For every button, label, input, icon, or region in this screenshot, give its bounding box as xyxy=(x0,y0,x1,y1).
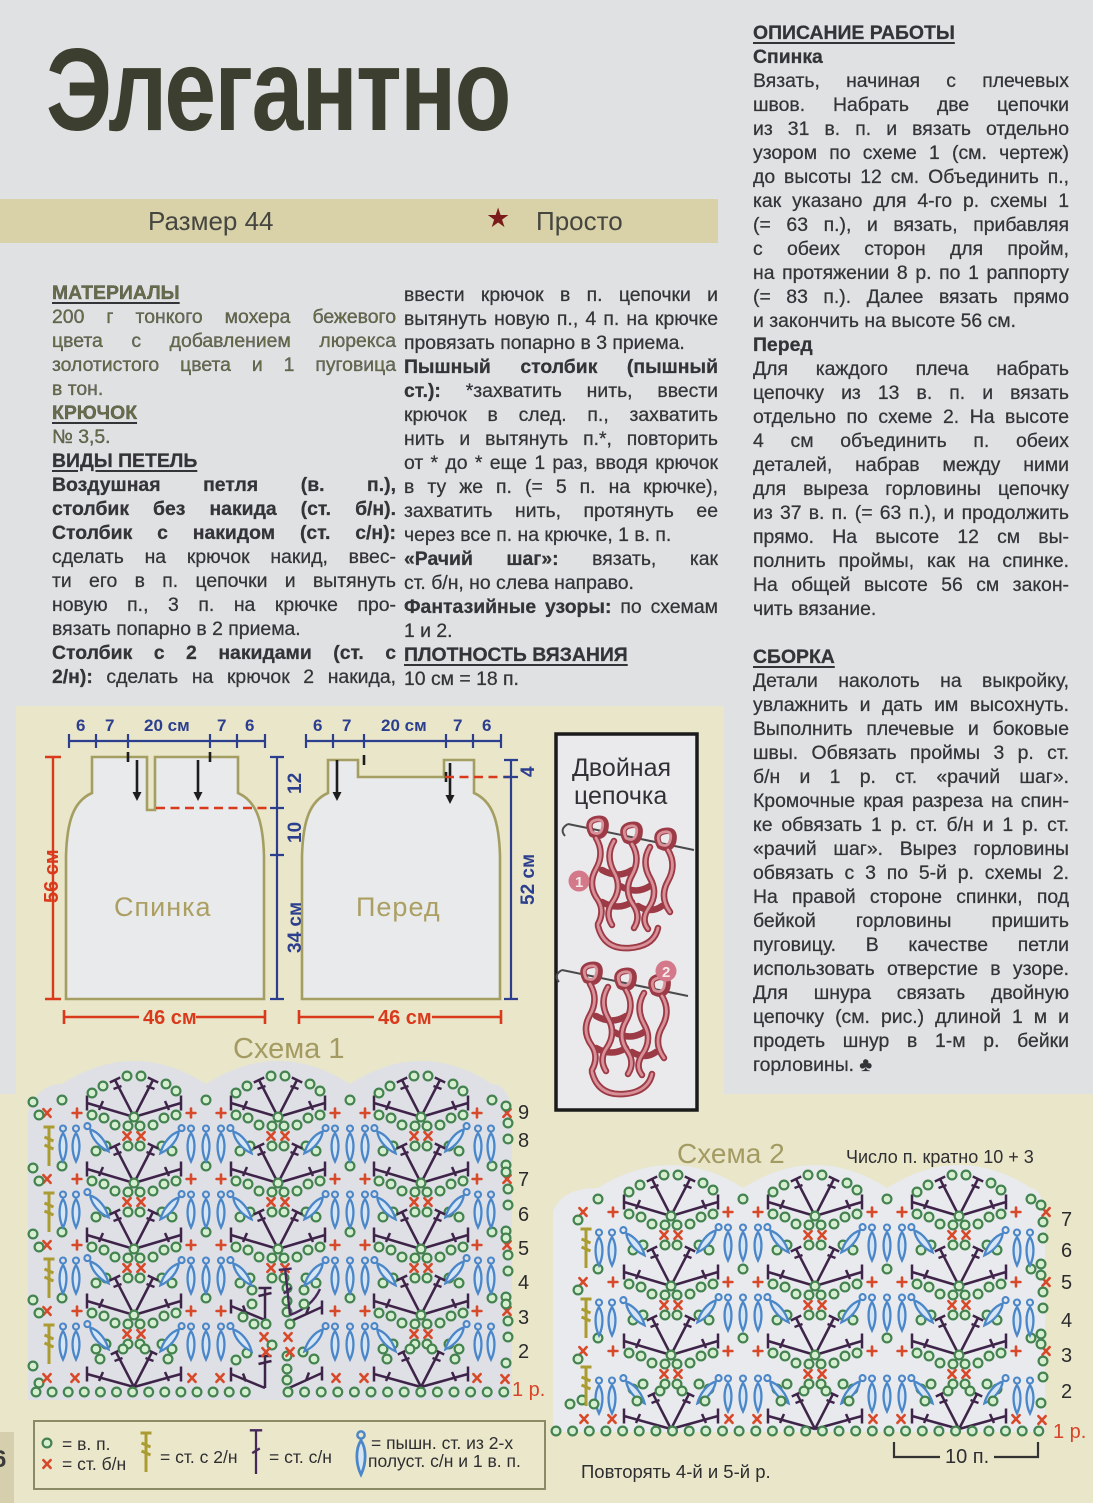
svg-text:2: 2 xyxy=(1061,1381,1072,1403)
svg-text:56 см: 56 см xyxy=(41,849,63,903)
svg-text:1 р.: 1 р. xyxy=(512,1379,545,1401)
svg-text:Повторять 4-й и 5-й р.: Повторять 4-й и 5-й р. xyxy=(581,1461,771,1482)
svg-text:20 см: 20 см xyxy=(381,716,427,735)
svg-text:7: 7 xyxy=(105,716,114,735)
svg-text:6: 6 xyxy=(1061,1240,1072,1262)
svg-text:Схема 1: Схема 1 xyxy=(233,1033,345,1065)
svg-text:цепочка: цепочка xyxy=(574,782,667,810)
svg-text:10 п.: 10 п. xyxy=(945,1446,989,1468)
svg-text:Спинка: Спинка xyxy=(114,892,212,922)
svg-text:52 см: 52 см xyxy=(518,854,539,905)
svg-text:= пышн. ст. из 2-х: = пышн. ст. из 2-х xyxy=(371,1433,513,1453)
svg-text:= ст. б/н: = ст. б/н xyxy=(62,1454,126,1474)
svg-text:7: 7 xyxy=(1061,1209,1072,1231)
svg-text:Двойная: Двойная xyxy=(572,754,671,782)
svg-text:= в. п.: = в. п. xyxy=(62,1434,110,1454)
svg-text:34 см: 34 см xyxy=(285,902,306,953)
svg-text:4: 4 xyxy=(518,1272,529,1294)
svg-text:7: 7 xyxy=(453,716,462,735)
svg-text:1 р.: 1 р. xyxy=(1053,1421,1086,1443)
svg-text:7: 7 xyxy=(342,716,351,735)
svg-text:7: 7 xyxy=(217,716,226,735)
svg-text:= ст. с 2/н: = ст. с 2/н xyxy=(160,1447,238,1467)
svg-text:6: 6 xyxy=(313,716,322,735)
svg-text:3: 3 xyxy=(518,1307,529,1329)
svg-text:6: 6 xyxy=(482,716,491,735)
svg-text:= ст. с/н: = ст. с/н xyxy=(269,1447,332,1467)
svg-text:46 см: 46 см xyxy=(143,1007,197,1029)
svg-text:4: 4 xyxy=(518,766,539,777)
svg-text:12: 12 xyxy=(285,773,306,794)
svg-text:Число п. кратно 10 + 3: Число п. кратно 10 + 3 xyxy=(846,1147,1034,1167)
svg-text:9: 9 xyxy=(518,1102,529,1124)
svg-text:6: 6 xyxy=(0,1446,6,1473)
svg-text:Перед: Перед xyxy=(356,892,441,922)
svg-text:полуст. с/н и 1 в. п.: полуст. с/н и 1 в. п. xyxy=(368,1451,521,1471)
svg-text:7: 7 xyxy=(518,1169,529,1191)
svg-text:6: 6 xyxy=(245,716,254,735)
svg-text:1: 1 xyxy=(575,874,583,891)
svg-text:5: 5 xyxy=(518,1238,529,1260)
svg-text:Схема 2: Схема 2 xyxy=(677,1138,785,1169)
svg-text:5: 5 xyxy=(1061,1272,1072,1294)
svg-text:20 см: 20 см xyxy=(144,716,190,735)
svg-text:8: 8 xyxy=(518,1130,529,1152)
svg-text:3: 3 xyxy=(1061,1345,1072,1367)
svg-text:10: 10 xyxy=(285,822,306,843)
svg-text:6: 6 xyxy=(518,1204,529,1226)
svg-text:2: 2 xyxy=(518,1341,529,1363)
svg-text:6: 6 xyxy=(76,716,85,735)
svg-text:46 см: 46 см xyxy=(378,1007,432,1029)
svg-text:4: 4 xyxy=(1061,1310,1072,1332)
svg-text:2: 2 xyxy=(662,964,670,981)
